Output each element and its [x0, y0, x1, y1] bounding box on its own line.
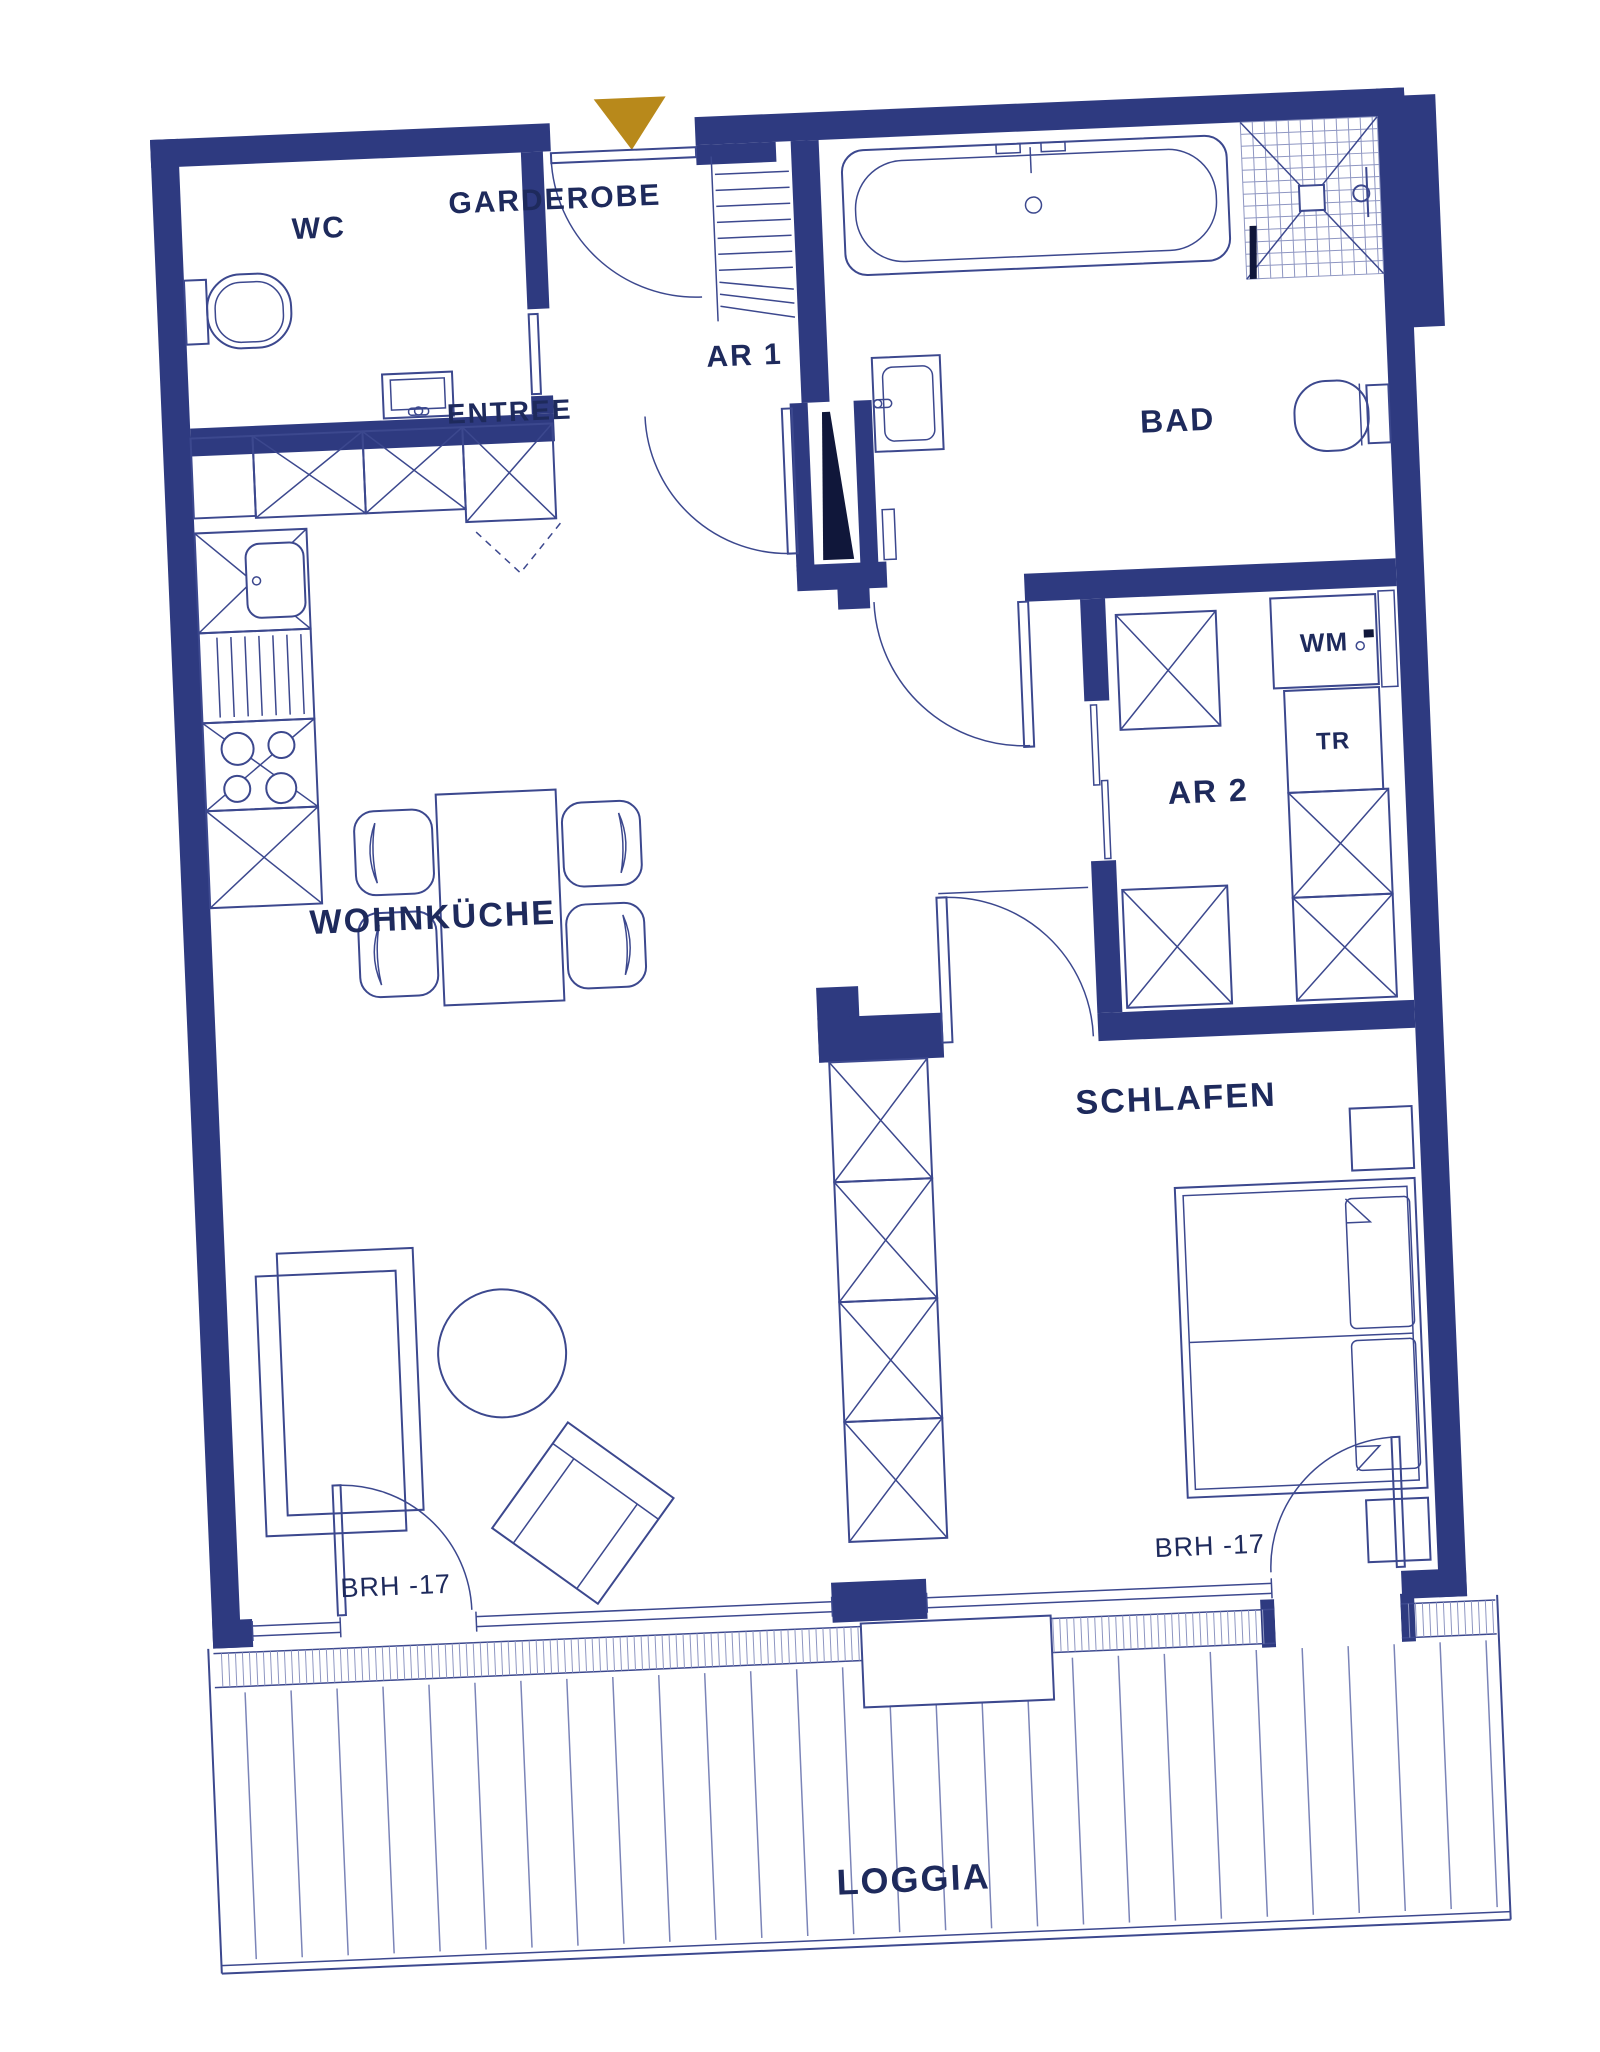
bad-sink [872, 355, 944, 452]
window [252, 1617, 341, 1641]
room-label-bad: BAD [1139, 401, 1216, 440]
radiator [882, 509, 896, 559]
kitchen-sink-basin [245, 542, 306, 618]
shower-drain [1299, 185, 1325, 211]
annotation-brh-living: BRH -17 [340, 1569, 452, 1604]
double-bed [1175, 1178, 1428, 1498]
entrance-triangle-icon [594, 96, 668, 151]
wardrobe-box [844, 1418, 947, 1542]
entree-door [645, 408, 798, 559]
room-label-ar1: AR 1 [706, 338, 784, 374]
balcony-door-bedroom [1266, 1437, 1405, 1572]
window [927, 1578, 1273, 1612]
bad-door-leaf [1018, 602, 1034, 747]
ar2-cabinet-x [1293, 894, 1397, 1001]
loggia-step [861, 1616, 1054, 1708]
duct-shaft [817, 411, 854, 560]
window [476, 1597, 833, 1632]
entrance-door-swing [551, 152, 702, 303]
coffee-table [435, 1287, 568, 1420]
wc-sliding-door [529, 314, 541, 394]
floor-plan-svg: WC GARDEROBE AR 1 ENTREE BAD AR 2 WOHNKÜ… [0, 0, 1600, 2052]
wc-toilet [184, 272, 293, 350]
kitchen-fridge [462, 423, 562, 575]
bedroom-door-swing [942, 891, 1093, 1042]
wardrobe-box [839, 1298, 942, 1422]
dining-chair [561, 800, 642, 887]
wc-sink [382, 372, 454, 419]
armchair [492, 1422, 673, 1603]
kitchen-cabinet-x3 [206, 807, 322, 909]
appliance-label-wm: WM [1299, 626, 1348, 658]
pillow [1351, 1338, 1420, 1471]
entrance-door-leaf [551, 147, 696, 163]
entree-door-swing [645, 411, 794, 560]
room-label-loggia: LOGGIA [836, 1855, 992, 1902]
appliance-door-swing-dashed [472, 523, 562, 575]
room-label-garderobe: GARDEROBE [448, 179, 662, 221]
room-label-schlafen: SCHLAFEN [1075, 1076, 1278, 1122]
bad-toilet [1293, 378, 1391, 452]
kitchen-stove [202, 719, 318, 812]
bedroom-furniture [1172, 1106, 1431, 1570]
nightstand [1366, 1498, 1431, 1563]
appliance-label-tr: TR [1316, 727, 1351, 755]
living-furniture [255, 1237, 678, 1617]
kitchen-dishwasher [199, 629, 315, 724]
bedroom-door [936, 887, 1094, 1042]
kitchen-units [191, 423, 576, 908]
dining-chair [565, 902, 646, 989]
floor-plan-page: WC GARDEROBE AR 1 ENTREE BAD AR 2 WOHNKÜ… [0, 0, 1600, 2052]
loggia-threshold [1274, 1595, 1402, 1646]
balcony-door-swing [1266, 1437, 1401, 1572]
room-label-wc: WC [291, 211, 346, 246]
ar1-shelves [715, 171, 795, 320]
bad-door-swing [874, 596, 1030, 752]
ar2-cabinet-x [1116, 611, 1221, 730]
kitchen-sink-unit [195, 529, 311, 634]
shaft-wedge [817, 411, 854, 560]
wardrobe-column [829, 1058, 947, 1542]
balcony-door-leaf [1391, 1437, 1404, 1567]
room-label-wohnkueche: WOHNKÜCHE [309, 894, 557, 942]
floor-plan: WC GARDEROBE AR 1 ENTREE BAD AR 2 WOHNKÜ… [144, 64, 1512, 1973]
bad-room [841, 117, 1403, 754]
dining-chair [353, 809, 434, 896]
bad-door [874, 596, 1034, 753]
room-label-entree: ENTREE [446, 394, 573, 430]
pillow [1345, 1196, 1414, 1329]
ar2-sliding-door [1090, 705, 1099, 785]
wardrobe-box [829, 1058, 932, 1182]
loggia [208, 1591, 1511, 1974]
bathtub [841, 135, 1231, 276]
sofa [255, 1248, 425, 1536]
room-label-ar2: AR 2 [1167, 772, 1249, 811]
ar2-sliding-door [1102, 780, 1111, 858]
nightstand [1350, 1106, 1415, 1171]
annotation-brh-bedroom: BRH -17 [1154, 1529, 1266, 1564]
walls [150, 86, 1500, 1691]
shower [1240, 117, 1383, 280]
ar1-closet [711, 153, 795, 321]
wardrobe-box [834, 1178, 937, 1302]
ar2-cabinet-x [1288, 789, 1392, 898]
ar2-cabinet-x [1122, 886, 1232, 1008]
